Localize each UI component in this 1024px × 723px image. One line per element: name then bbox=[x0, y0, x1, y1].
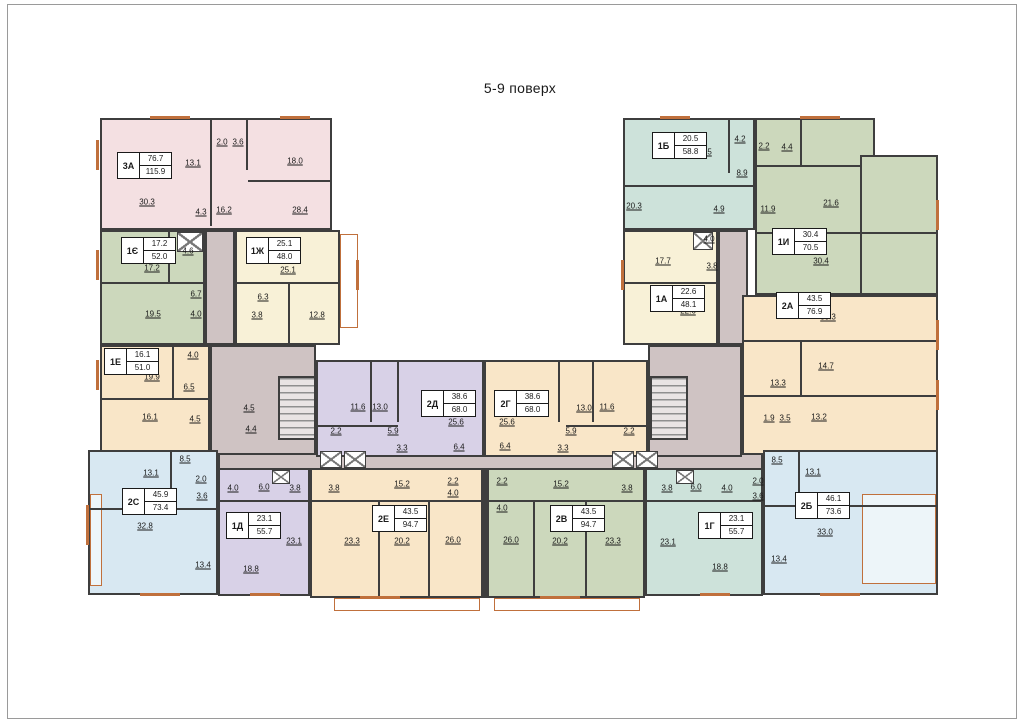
staircase bbox=[278, 376, 316, 440]
room-area-label: 4.3 bbox=[195, 208, 206, 217]
room-area-label: 2.0 bbox=[752, 477, 763, 486]
interior-wall bbox=[100, 398, 210, 400]
room-area-label: 4.0 bbox=[496, 504, 507, 513]
room-area-label: 3.8 bbox=[328, 484, 339, 493]
unit-code: 1Є bbox=[122, 238, 144, 263]
unit-areas: 76.7115.9 bbox=[140, 153, 171, 178]
window-mark bbox=[96, 360, 99, 390]
room-area-label: 23.1 bbox=[660, 538, 676, 547]
unit-code: 2А bbox=[777, 293, 799, 318]
window-mark bbox=[86, 505, 89, 545]
room-area-label: 3.8 bbox=[706, 262, 717, 271]
interior-wall bbox=[172, 345, 174, 398]
unit-areas: 30.470.5 bbox=[795, 229, 826, 254]
unit-area-total: 94.7 bbox=[395, 519, 426, 531]
unit-area-total: 70.5 bbox=[795, 242, 826, 254]
room-area-label: 26.0 bbox=[503, 536, 519, 545]
interior-wall bbox=[800, 340, 802, 397]
room-area-label: 33.0 bbox=[817, 528, 833, 537]
unit-label-1А: 1А22.648.1 bbox=[650, 285, 705, 312]
room-area-label: 3.3 bbox=[396, 444, 407, 453]
interior-wall bbox=[481, 468, 489, 598]
unit-code: 1А bbox=[651, 286, 673, 311]
room-area-label: 4.2 bbox=[734, 135, 745, 144]
room-area-label: 1.9 bbox=[763, 414, 774, 423]
interior-wall bbox=[397, 360, 399, 422]
unit-area-total: 73.4 bbox=[145, 502, 176, 514]
room-area-label: 4.0 bbox=[703, 235, 714, 244]
unit-label-1Ж: 1Ж25.148.0 bbox=[246, 237, 301, 264]
room-area-label: 25.6 bbox=[448, 418, 464, 427]
unit-label-2А: 2А43.576.9 bbox=[776, 292, 831, 319]
room-area-label: 4.6 bbox=[182, 247, 193, 256]
interior-wall bbox=[288, 282, 290, 345]
floor-title: 5-9 поверх bbox=[440, 80, 600, 96]
elevator-shaft bbox=[320, 451, 342, 468]
room-area-label: 13.4 bbox=[771, 555, 787, 564]
unit-areas: 43.576.9 bbox=[799, 293, 830, 318]
unit-label-1Д: 1Д23.155.7 bbox=[226, 512, 281, 539]
elevator-shaft bbox=[344, 451, 366, 468]
room-area-label: 13.1 bbox=[185, 159, 201, 168]
vent-shaft bbox=[272, 470, 290, 484]
unit-area-total: 73.6 bbox=[818, 506, 849, 518]
unit-area-total: 52.0 bbox=[144, 251, 175, 263]
window-mark bbox=[96, 140, 99, 170]
unit-area-living: 23.1 bbox=[721, 513, 752, 526]
interior-wall bbox=[428, 500, 430, 596]
unit-areas: 23.155.7 bbox=[249, 513, 280, 538]
unit-code: 2В bbox=[551, 506, 573, 531]
interior-wall bbox=[218, 500, 310, 502]
room-area-label: 13.0 bbox=[576, 404, 592, 413]
unit-areas: 17.252.0 bbox=[144, 238, 175, 263]
window-mark bbox=[540, 596, 580, 599]
unit-area-living: 17.2 bbox=[144, 238, 175, 251]
interior-wall bbox=[210, 120, 212, 226]
interior-wall bbox=[485, 500, 645, 502]
window-mark bbox=[700, 593, 730, 596]
room-area-label: 5.9 bbox=[565, 427, 576, 436]
room-area-label: 2.2 bbox=[496, 477, 507, 486]
unit-area-total: 94.7 bbox=[573, 519, 604, 531]
unit-code: 2Г bbox=[495, 391, 517, 416]
room-area-label: 13.2 bbox=[811, 413, 827, 422]
unit-code: 3А bbox=[118, 153, 140, 178]
unit-area-living: 22.6 bbox=[673, 286, 704, 299]
room-area-label: 20.3 bbox=[626, 202, 642, 211]
room-area-label: 12.8 bbox=[309, 311, 325, 320]
room-area-label: 8.5 bbox=[771, 456, 782, 465]
unit-area-total: 115.9 bbox=[140, 166, 171, 178]
window-mark bbox=[140, 593, 180, 596]
unit-code: 1Б bbox=[653, 133, 675, 158]
room-area-label: 4.0 bbox=[721, 484, 732, 493]
room-area-label: 3.8 bbox=[289, 484, 300, 493]
room-area-label: 3.5 bbox=[779, 414, 790, 423]
unit-code: 2Б bbox=[796, 493, 818, 518]
room-area-label: 3.8 bbox=[661, 484, 672, 493]
unit-label-2Б: 2Б46.173.6 bbox=[795, 492, 850, 519]
room-area-label: 13.0 bbox=[372, 403, 388, 412]
interior-wall bbox=[592, 360, 594, 422]
room-area-label: 6.4 bbox=[499, 442, 510, 451]
region-apartment-2a bbox=[742, 295, 938, 455]
window-mark bbox=[800, 116, 840, 119]
unit-area-total: 48.1 bbox=[673, 299, 704, 311]
room-area-label: 13.3 bbox=[770, 379, 786, 388]
interior-wall bbox=[623, 185, 755, 187]
unit-area-total: 68.0 bbox=[517, 404, 548, 416]
unit-areas: 16.151.0 bbox=[127, 349, 158, 374]
room-area-label: 4.0 bbox=[227, 484, 238, 493]
staircase bbox=[650, 376, 688, 440]
unit-areas: 38.668.0 bbox=[517, 391, 548, 416]
interior-wall bbox=[800, 118, 802, 167]
room-area-label: 13.1 bbox=[143, 469, 159, 478]
unit-area-living: 43.5 bbox=[395, 506, 426, 519]
window-mark bbox=[250, 593, 280, 596]
unit-areas: 38.668.0 bbox=[444, 391, 475, 416]
room-area-label: 20.2 bbox=[552, 537, 568, 546]
balcony bbox=[334, 598, 480, 611]
room-area-label: 8.5 bbox=[179, 455, 190, 464]
room-area-label: 2.2 bbox=[330, 427, 341, 436]
unit-code: 1Д bbox=[227, 513, 249, 538]
room-area-label: 6.3 bbox=[257, 293, 268, 302]
window-mark bbox=[936, 200, 939, 230]
interior-wall bbox=[100, 282, 205, 284]
room-area-label: 2.2 bbox=[758, 142, 769, 151]
room-area-label: 3.8 bbox=[621, 484, 632, 493]
balcony bbox=[494, 598, 640, 611]
room-area-label: 4.5 bbox=[189, 415, 200, 424]
room-area-label: 6.0 bbox=[690, 483, 701, 492]
unit-code: 1И bbox=[773, 229, 795, 254]
region-apartment-1i-east bbox=[860, 155, 938, 295]
unit-code: 2С bbox=[123, 489, 145, 514]
room-area-label: 21.6 bbox=[823, 199, 839, 208]
unit-area-total: 48.0 bbox=[269, 251, 300, 263]
room-area-label: 2.0 bbox=[195, 475, 206, 484]
room-area-label: 4.0 bbox=[447, 489, 458, 498]
window-mark bbox=[356, 260, 359, 290]
room-area-label: 4.0 bbox=[187, 351, 198, 360]
window-mark bbox=[936, 320, 939, 350]
unit-area-living: 38.6 bbox=[517, 391, 548, 404]
unit-code: 1Ж bbox=[247, 238, 269, 263]
room-area-label: 26.0 bbox=[445, 536, 461, 545]
unit-label-1Е: 1Е16.151.0 bbox=[104, 348, 159, 375]
room-area-label: 2.2 bbox=[623, 427, 634, 436]
window-mark bbox=[280, 116, 310, 119]
unit-label-2С: 2С45.973.4 bbox=[122, 488, 177, 515]
room-area-label: 4.0 bbox=[190, 310, 201, 319]
unit-area-living: 43.5 bbox=[799, 293, 830, 306]
unit-areas: 43.594.7 bbox=[573, 506, 604, 531]
unit-area-living: 25.1 bbox=[269, 238, 300, 251]
interior-wall bbox=[310, 500, 485, 502]
window-mark bbox=[150, 116, 190, 119]
window-mark bbox=[820, 593, 860, 596]
room-area-label: 2.0 bbox=[216, 138, 227, 147]
unit-label-1Г: 1Г23.155.7 bbox=[698, 512, 753, 539]
unit-code: 2Е bbox=[373, 506, 395, 531]
room-area-label: 25.6 bbox=[499, 418, 515, 427]
unit-area-living: 16.1 bbox=[127, 349, 158, 362]
room-area-label: 4.9 bbox=[713, 205, 724, 214]
room-area-label: 30.3 bbox=[139, 198, 155, 207]
unit-areas: 45.973.4 bbox=[145, 489, 176, 514]
room-area-label: 19.5 bbox=[145, 310, 161, 319]
unit-code: 1Е bbox=[105, 349, 127, 374]
interior-wall bbox=[533, 500, 535, 596]
interior-wall bbox=[742, 395, 938, 397]
room-area-label: 23.3 bbox=[605, 537, 621, 546]
interior-wall bbox=[763, 505, 938, 507]
interior-wall bbox=[742, 340, 938, 342]
interior-wall bbox=[248, 180, 332, 182]
unit-area-living: 43.5 bbox=[573, 506, 604, 519]
room-area-label: 15.2 bbox=[394, 480, 410, 489]
unit-label-1Б: 1Б20.558.8 bbox=[652, 132, 707, 159]
window-mark bbox=[936, 380, 939, 410]
room-area-label: 23.3 bbox=[344, 537, 360, 546]
room-area-label: 2.2 bbox=[447, 477, 458, 486]
room-area-label: 3.8 bbox=[251, 311, 262, 320]
room-area-label: 3.6 bbox=[752, 492, 763, 501]
room-area-label: 16.2 bbox=[216, 206, 232, 215]
room-area-label: 20.2 bbox=[394, 537, 410, 546]
room-area-label: 18.0 bbox=[287, 157, 303, 166]
room-area-label: 17.2 bbox=[144, 264, 160, 273]
interior-wall bbox=[316, 425, 398, 427]
unit-label-2В: 2В43.594.7 bbox=[550, 505, 605, 532]
unit-area-total: 68.0 bbox=[444, 404, 475, 416]
room-area-label: 5.9 bbox=[387, 427, 398, 436]
unit-label-2Е: 2Е43.594.7 bbox=[372, 505, 427, 532]
unit-code: 2Д bbox=[422, 391, 444, 416]
room-area-label: 3.6 bbox=[232, 138, 243, 147]
window-mark bbox=[621, 260, 624, 290]
unit-label-1И: 1И30.470.5 bbox=[772, 228, 827, 255]
room-area-label: 6.4 bbox=[453, 443, 464, 452]
region-corridor-top-left bbox=[205, 230, 235, 345]
room-area-label: 3.6 bbox=[196, 492, 207, 501]
unit-area-living: 20.5 bbox=[675, 133, 706, 146]
room-area-label: 32.8 bbox=[137, 522, 153, 531]
room-area-label: 3.3 bbox=[557, 444, 568, 453]
room-area-label: 11.6 bbox=[600, 403, 615, 412]
unit-area-total: 55.7 bbox=[249, 526, 280, 538]
interior-wall bbox=[558, 360, 560, 422]
unit-area-living: 23.1 bbox=[249, 513, 280, 526]
room-area-label: 6.7 bbox=[190, 290, 201, 299]
room-area-label: 6.0 bbox=[258, 483, 269, 492]
unit-area-living: 38.6 bbox=[444, 391, 475, 404]
room-area-label: 30.4 bbox=[813, 257, 829, 266]
room-area-label: 15.2 bbox=[553, 480, 569, 489]
interior-wall bbox=[246, 120, 248, 170]
room-area-label: 13.1 bbox=[805, 468, 821, 477]
room-area-label: 11.9 bbox=[761, 205, 776, 214]
interior-wall bbox=[755, 165, 862, 167]
unit-label-2Г: 2Г38.668.0 bbox=[494, 390, 549, 417]
unit-area-total: 55.7 bbox=[721, 526, 752, 538]
room-area-label: 8.9 bbox=[736, 169, 747, 178]
room-area-label: 4.4 bbox=[781, 143, 792, 152]
unit-area-living: 45.9 bbox=[145, 489, 176, 502]
unit-area-living: 46.1 bbox=[818, 493, 849, 506]
room-area-label: 4.5 bbox=[243, 404, 254, 413]
window-mark bbox=[660, 116, 690, 119]
room-area-label: 6.5 bbox=[183, 383, 194, 392]
room-area-label: 11.6 bbox=[351, 403, 366, 412]
interior-wall bbox=[370, 360, 372, 422]
elevator-shaft bbox=[612, 451, 634, 468]
room-area-label: 25.1 bbox=[280, 266, 296, 275]
unit-label-3А: 3А76.7115.9 bbox=[117, 152, 172, 179]
unit-areas: 23.155.7 bbox=[721, 513, 752, 538]
unit-areas: 46.173.6 bbox=[818, 493, 849, 518]
room-area-label: 17.7 bbox=[655, 257, 671, 266]
unit-area-total: 76.9 bbox=[799, 306, 830, 318]
balcony bbox=[862, 494, 936, 584]
unit-area-total: 51.0 bbox=[127, 362, 158, 374]
unit-areas: 25.148.0 bbox=[269, 238, 300, 263]
unit-area-living: 30.4 bbox=[795, 229, 826, 242]
room-area-label: 4.4 bbox=[245, 425, 256, 434]
room-area-label: 13.4 bbox=[195, 561, 211, 570]
unit-area-living: 76.7 bbox=[140, 153, 171, 166]
unit-areas: 20.558.8 bbox=[675, 133, 706, 158]
interior-wall bbox=[623, 282, 718, 284]
floorplan-canvas: 5-9 поверх 30.313.12.03.618.04.316.228.4… bbox=[0, 0, 1024, 723]
unit-areas: 22.648.1 bbox=[673, 286, 704, 311]
unit-areas: 43.594.7 bbox=[395, 506, 426, 531]
window-mark bbox=[360, 596, 400, 599]
window-mark bbox=[96, 250, 99, 280]
unit-code: 1Г bbox=[699, 513, 721, 538]
unit-area-total: 58.8 bbox=[675, 146, 706, 158]
interior-wall bbox=[645, 500, 763, 502]
room-area-label: 28.4 bbox=[292, 206, 308, 215]
interior-wall bbox=[566, 425, 648, 427]
room-area-label: 16.1 bbox=[142, 413, 158, 422]
room-area-label: 14.7 bbox=[818, 362, 834, 371]
interior-wall bbox=[728, 118, 730, 173]
unit-label-2Д: 2Д38.668.0 bbox=[421, 390, 476, 417]
room-area-label: 18.8 bbox=[712, 563, 728, 572]
room-area-label: 23.1 bbox=[286, 537, 302, 546]
elevator-shaft bbox=[636, 451, 658, 468]
unit-label-1Є: 1Є17.252.0 bbox=[121, 237, 176, 264]
room-area-label: 18.8 bbox=[243, 565, 259, 574]
